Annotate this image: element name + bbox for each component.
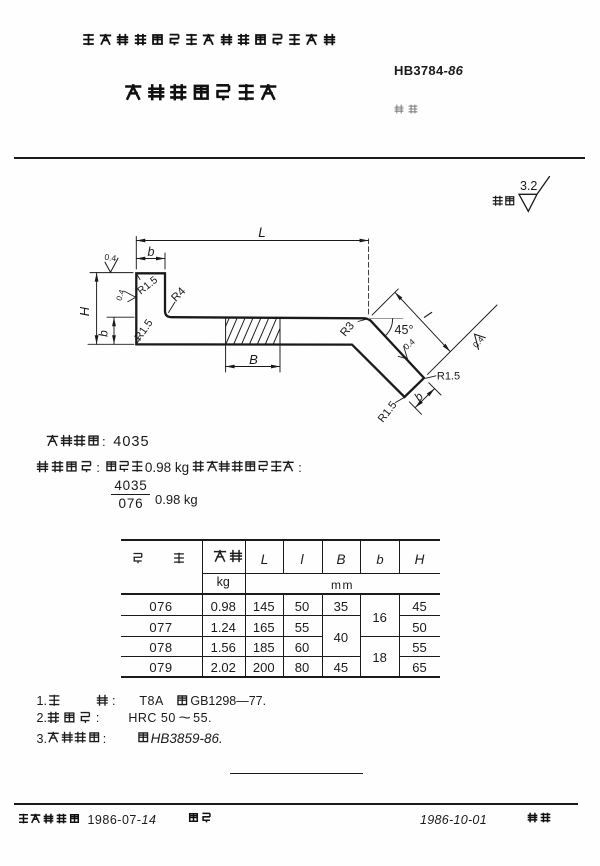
svg-text:0.4: 0.4 (401, 336, 417, 351)
svg-text:0.4: 0.4 (104, 252, 117, 264)
svg-text:b: b (148, 245, 155, 259)
svg-text:R4: R4 (169, 285, 188, 304)
svg-text:H: H (77, 306, 92, 316)
svg-text:R1.5: R1.5 (376, 399, 400, 425)
svg-text:0.4: 0.4 (471, 334, 486, 350)
svg-text:b: b (411, 389, 426, 404)
svg-text:0.4: 0.4 (115, 288, 127, 302)
svg-text:45°: 45° (395, 323, 414, 337)
svg-text:L: L (258, 225, 266, 240)
svg-text:R1.5: R1.5 (437, 371, 460, 383)
svg-text:b: b (97, 330, 111, 337)
svg-text:B: B (249, 352, 258, 367)
svg-text:l: l (421, 308, 434, 321)
svg-text:R3: R3 (338, 320, 357, 339)
